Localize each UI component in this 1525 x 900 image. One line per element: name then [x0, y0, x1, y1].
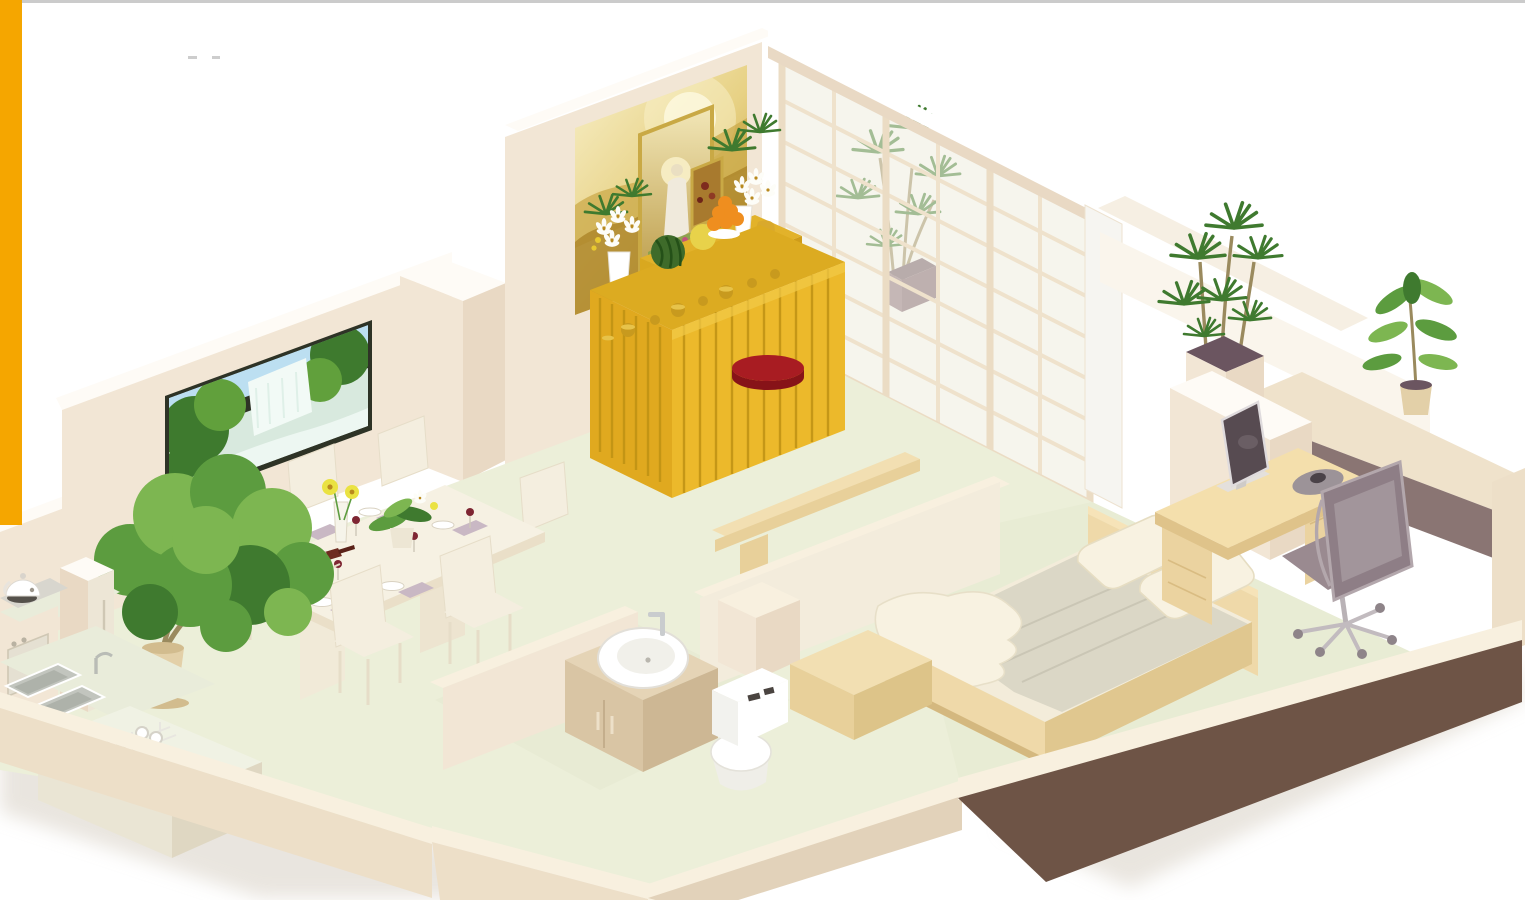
door-panel-3 [990, 164, 1090, 503]
left-accent-bar [0, 0, 22, 525]
top-border-line [22, 0, 1525, 3]
red-prayer-cushion [732, 355, 804, 390]
isometric-apartment [0, 0, 1525, 900]
watermelon [651, 235, 685, 269]
watermark-specks [188, 56, 220, 59]
wall-stub-near-toilet [718, 582, 800, 680]
apartment-render-canvas [0, 0, 1525, 900]
